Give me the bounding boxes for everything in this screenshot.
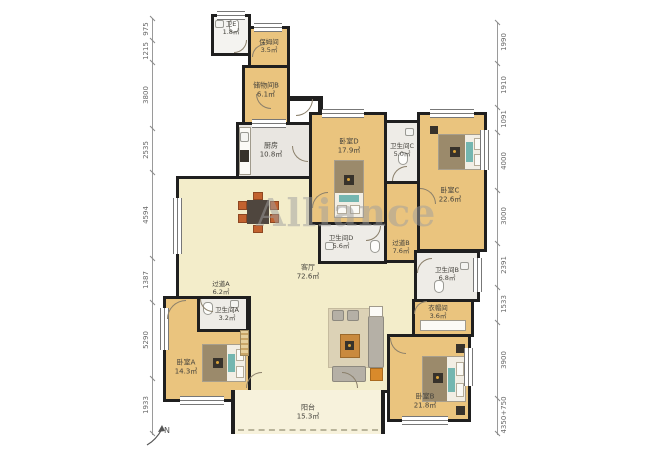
stove: [240, 150, 249, 162]
dining-chair: [238, 201, 247, 210]
dimension-line-left: [152, 18, 153, 435]
dimension-label: 1990: [500, 33, 508, 51]
sink: [405, 128, 414, 136]
dimension-label: 1387: [142, 271, 150, 289]
room-label: 阳台15.3㎡: [297, 403, 320, 421]
window: [464, 348, 473, 386]
room-label: 衣帽间3.6㎡: [428, 304, 448, 320]
room-label: 客厅72.6㎡: [297, 263, 320, 281]
window: [254, 23, 282, 32]
armchair: [332, 310, 344, 321]
dimension-line-right: [497, 22, 498, 435]
nightstand: [430, 126, 438, 134]
dimension-label: 3000: [500, 207, 508, 225]
dimension-label: 1091: [500, 110, 508, 128]
decor-dot: [453, 150, 456, 153]
room-label: 卧室C22.6㎡: [439, 186, 462, 204]
decor-dot: [347, 178, 350, 181]
window: [473, 258, 482, 292]
window: [217, 11, 245, 20]
dimension-label: 3900: [500, 351, 508, 369]
dimension-label: 4594: [142, 206, 150, 224]
room-label: 卫生间B6.8㎡: [435, 266, 459, 282]
dimension-label: 2391: [500, 256, 508, 274]
room-label: 卫生间C5.0㎡: [390, 142, 414, 158]
bed-pillow: [456, 362, 464, 376]
room-label: 卫E1.8㎡: [223, 20, 240, 36]
dimension-label: 3800: [142, 86, 150, 104]
side-table-orange: [370, 368, 383, 381]
balcony-open-edge: [238, 429, 378, 431]
cloakroom-dresser: [420, 320, 466, 331]
dimension-label: 1933: [142, 396, 150, 414]
bed-throw: [466, 142, 473, 162]
window: [252, 119, 286, 128]
bed-throw: [448, 368, 455, 392]
north-label: N: [164, 426, 170, 435]
room-living-extension: [389, 261, 414, 339]
dimension-label: 1215: [142, 42, 150, 60]
nightstand: [456, 406, 465, 415]
window: [480, 130, 489, 170]
side-table: [369, 306, 383, 317]
kitchen-sink: [240, 132, 249, 142]
bed: [438, 134, 484, 170]
dining-chair: [238, 214, 247, 223]
window: [402, 416, 448, 425]
bed-pillow: [456, 383, 464, 397]
dimension-label: 4350+750: [500, 396, 508, 433]
room-label: 卫生间A3.2㎡: [215, 306, 239, 322]
room-label: 厨房10.8㎡: [260, 141, 283, 159]
decor-dot: [216, 361, 219, 364]
window: [322, 109, 364, 118]
room-label: 卫生间D5.6㎡: [329, 234, 354, 250]
sofa: [368, 316, 384, 368]
dimension-label: 2535: [142, 141, 150, 159]
bed-throw: [228, 354, 235, 372]
room-label: 过道A6.2㎡: [212, 280, 229, 296]
bed-pillow: [236, 366, 244, 378]
room-label: 过道B7.6㎡: [392, 239, 409, 255]
dimension-label: 975: [142, 22, 150, 35]
armchair: [347, 310, 359, 321]
window: [430, 109, 474, 118]
watermark: Alliance: [256, 190, 436, 235]
sink: [460, 262, 469, 270]
decor-dot: [436, 376, 439, 379]
room-label: 卧室D17.9㎡: [338, 137, 361, 155]
dimension-label: 5290: [142, 331, 150, 349]
dimension-label: 1533: [500, 295, 508, 313]
room-label: 卧室A14.3㎡: [175, 358, 198, 376]
toilet: [370, 240, 380, 253]
dimension-label: 1910: [500, 76, 508, 94]
window: [180, 396, 224, 405]
room-label: 保姆间3.5㎡: [259, 38, 279, 54]
wardrobe: [240, 330, 249, 356]
dimension-label: 4000: [500, 152, 508, 170]
floor-plan: 卫E1.8㎡ 保姆间3.5㎡ 储物间B6.1㎡ 厨房10.8㎡ 卧室D17.9㎡…: [0, 0, 650, 450]
room-label: 卧室B21.8㎡: [414, 392, 437, 410]
decor-dot: [348, 344, 351, 347]
room-label: 储物间B6.1㎡: [253, 81, 279, 99]
window: [173, 198, 182, 254]
